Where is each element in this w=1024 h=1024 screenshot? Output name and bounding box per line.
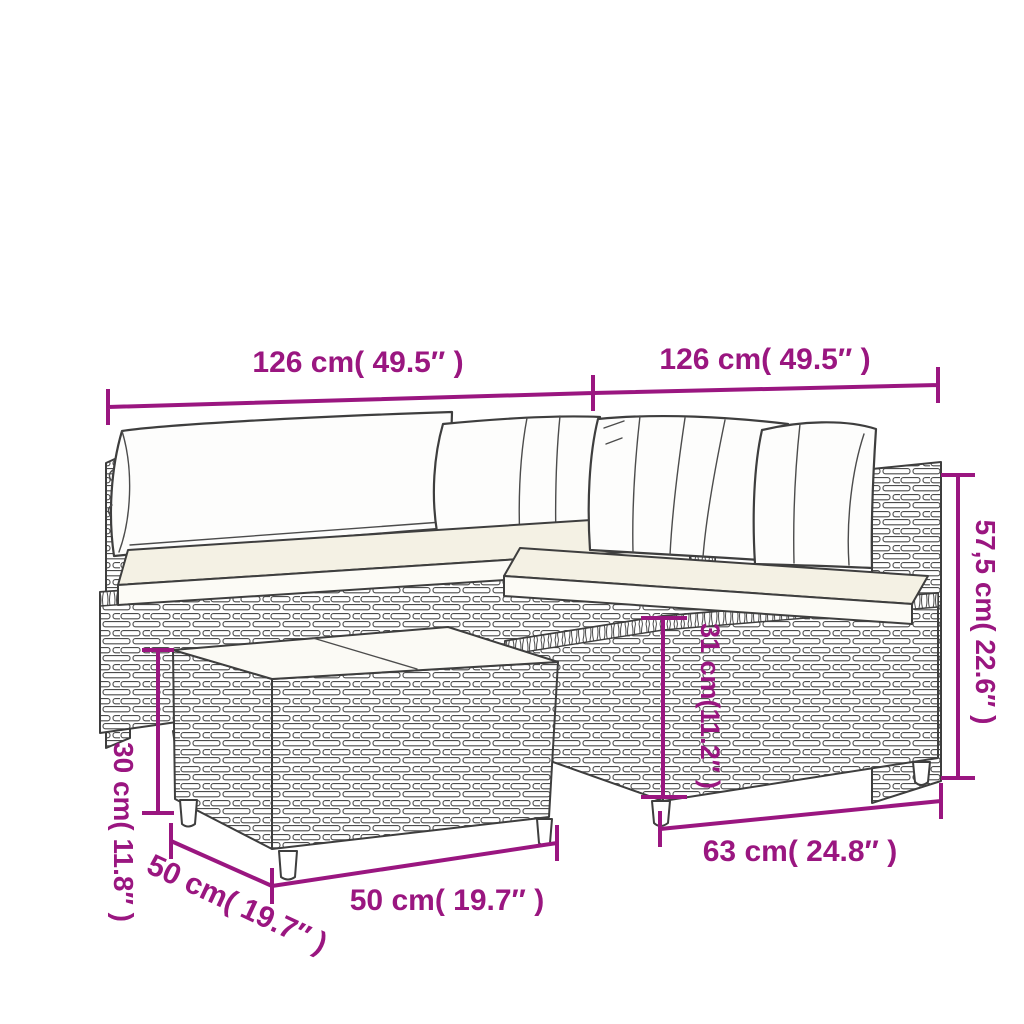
table-right-leg: [537, 819, 552, 846]
dimension-label: 63 cm( 24.8″ ): [703, 835, 897, 868]
dimension-drawing: 126 cm( 49.5″ ) 126 cm( 49.5″ ) 57,5 cm(…: [0, 0, 1024, 1024]
right-sofa-right-leg: [913, 762, 930, 785]
coffee-table: [173, 627, 558, 880]
dimension-label: 126 cm( 49.5″ ): [252, 346, 463, 379]
dimension-right-section-width: 126 cm( 49.5″ ): [593, 343, 938, 403]
dimension-label: 50 cm( 19.7″ ): [350, 884, 544, 917]
dimension-label: 126 cm( 49.5″ ): [659, 343, 870, 376]
dimension-backrest-height: 57,5 cm( 22.6″ ): [941, 475, 1001, 778]
dimension-label: 31 cm(11.2″ ): [695, 623, 725, 789]
dimension-label: 57,5 cm( 22.6″ ): [970, 520, 1001, 725]
dimension-label: 50 cm( 19.7″ ): [142, 848, 332, 960]
dimension-label: 30 cm( 11.8″ ): [108, 742, 139, 922]
right-back-cushion: [754, 422, 876, 568]
dimension-left-section-width: 126 cm( 49.5″ ): [108, 346, 593, 425]
table-front-face: [272, 662, 558, 849]
product-dimension-diagram: 126 cm( 49.5″ ) 126 cm( 49.5″ ) 57,5 cm(…: [0, 0, 1024, 1024]
table-front-leg: [279, 851, 297, 880]
table-left-leg: [180, 800, 197, 827]
